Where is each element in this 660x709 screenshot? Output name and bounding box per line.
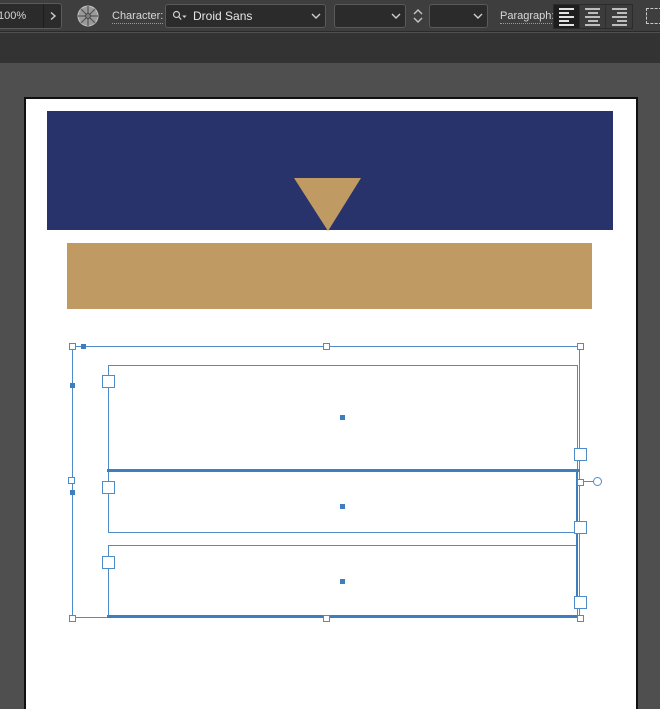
chevron-right-icon[interactable] (43, 4, 61, 28)
frame-3-out-port[interactable] (574, 596, 587, 609)
handle-bottom-center[interactable] (323, 615, 330, 622)
align-right-icon (612, 8, 627, 26)
chevron-down-icon (413, 17, 423, 23)
handle-bottom-right[interactable] (577, 615, 584, 622)
frame-2-out-port[interactable] (574, 521, 587, 534)
align-center-icon (585, 8, 600, 26)
anchor-point-top[interactable] (81, 344, 86, 349)
anchor-point-left-upper[interactable] (70, 383, 75, 388)
toolbar-lower-band (0, 33, 660, 63)
align-center-button[interactable] (580, 5, 606, 28)
align-right-button[interactable] (606, 5, 632, 28)
frame-1-in-port[interactable] (102, 375, 115, 388)
handle-top-left[interactable] (69, 343, 76, 350)
chevron-down-icon[interactable] (307, 13, 325, 19)
handle-top-right[interactable] (577, 343, 584, 350)
frame-edge-thick-right (576, 471, 578, 603)
font-size-combobox[interactable] (429, 4, 488, 28)
wheel-icon[interactable] (77, 5, 99, 27)
dashed-selection-icon[interactable] (646, 8, 660, 24)
font-family-value: Droid Sans (187, 9, 307, 23)
text-frame-2[interactable] (108, 471, 578, 533)
frame-1-center-point[interactable] (340, 415, 345, 420)
control-bar: 100% Character: (0, 0, 660, 32)
frame-edge-thick-bottom (107, 615, 579, 618)
handle-left-center[interactable] (68, 477, 75, 484)
frame-3-center-point[interactable] (340, 579, 345, 584)
paragraph-align-group (553, 4, 633, 29)
font-family-combobox[interactable]: Droid Sans (165, 4, 326, 28)
chevron-down-icon[interactable] (469, 13, 487, 19)
font-style-combobox[interactable] (334, 4, 406, 28)
paragraph-label-text: Paragraph: (500, 10, 554, 24)
chevron-down-icon[interactable] (387, 13, 405, 19)
tan-bar-rectangle[interactable] (67, 243, 592, 309)
character-label-text: Character: (112, 10, 163, 24)
tan-down-triangle[interactable] (294, 178, 361, 231)
zoom-level-value: 100% (0, 10, 43, 22)
frame-1-out-port[interactable] (574, 448, 587, 461)
search-icon (172, 10, 187, 22)
extension-handle-circle[interactable] (593, 477, 602, 486)
align-left-button[interactable] (554, 5, 580, 28)
paragraph-label[interactable]: Paragraph: (500, 10, 554, 22)
handle-top-center[interactable] (323, 343, 330, 350)
frame-2-center-point[interactable] (340, 504, 345, 509)
app-window: 100% Character: (0, 0, 660, 709)
zoom-level-field[interactable]: 100% (0, 3, 62, 29)
anchor-point-left-lower[interactable] (70, 490, 75, 495)
frame-2-in-port[interactable] (102, 481, 115, 494)
handle-bottom-left[interactable] (69, 615, 76, 622)
frame-3-in-port[interactable] (102, 556, 115, 569)
frame-edge-thick-top (107, 469, 580, 472)
chevron-up-icon (413, 9, 423, 15)
handle-right-center[interactable] (577, 479, 584, 486)
font-size-stepper[interactable] (410, 4, 426, 28)
align-left-icon (559, 8, 574, 26)
character-label[interactable]: Character: (112, 10, 163, 22)
